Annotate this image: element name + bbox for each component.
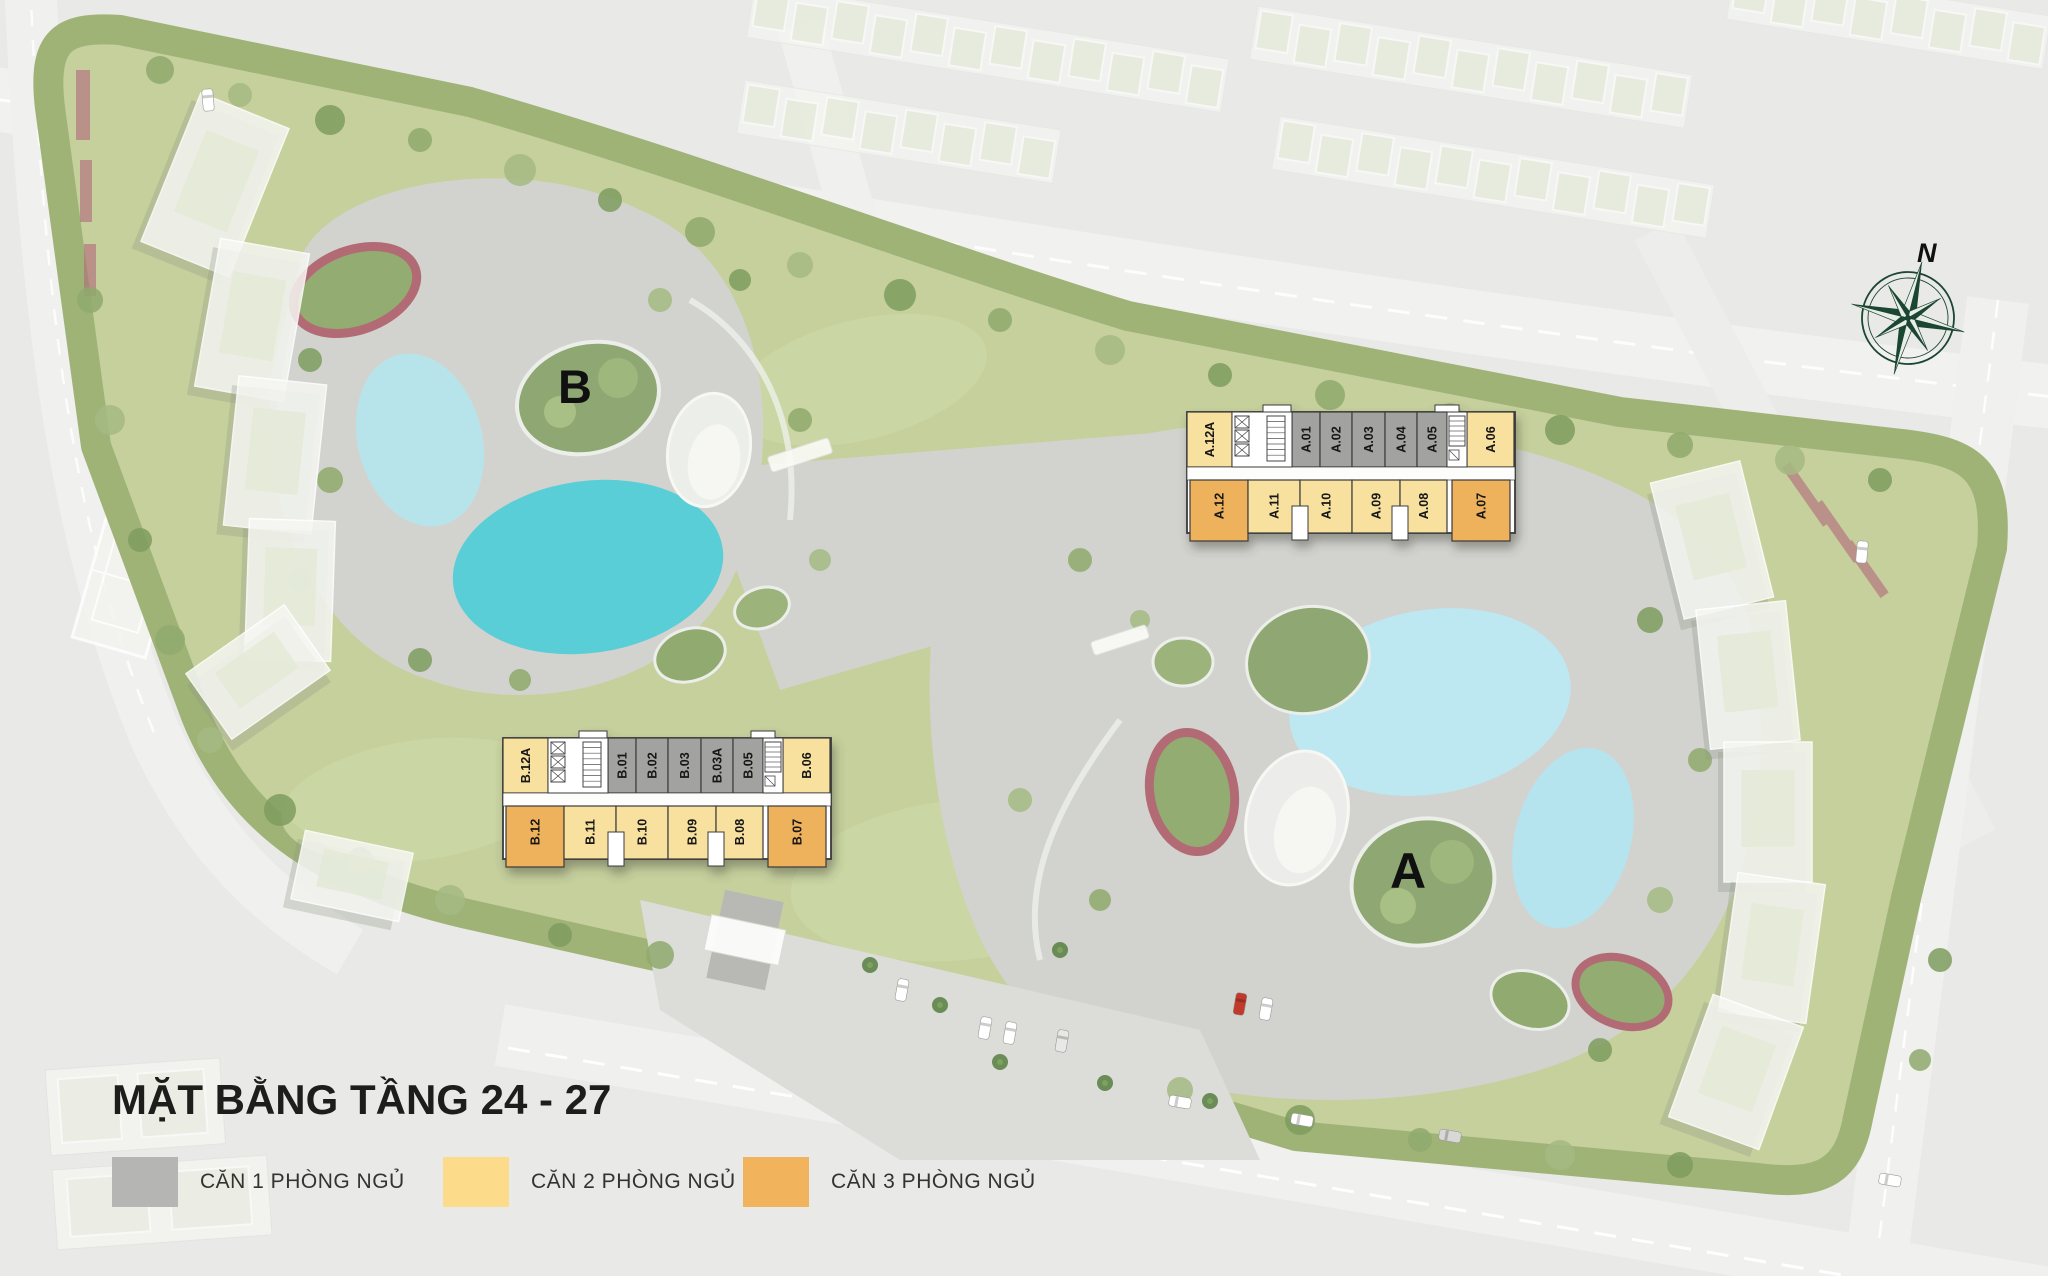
unit-label: A.10 [1319,493,1333,519]
unit-label: B.03 [678,752,692,778]
unit-label: A.11 [1267,493,1281,519]
legend-swatch-2br [443,1157,509,1207]
unit-label: B.05 [741,752,755,778]
unit-label: B.03A [710,748,724,783]
unit-label: B.06 [800,752,814,778]
entry-notch [708,832,724,866]
car-icon [1856,541,1869,564]
zone-label-a: A [1390,843,1426,899]
legend-item-3br: CĂN 3 PHÒNG NGỦ [743,1157,1036,1207]
unit-label: B.09 [685,819,699,845]
legend-label-2br: CĂN 2 PHÒNG NGỦ [531,1170,736,1194]
unit-label: B.01 [615,752,629,778]
compass-n-label: N [1917,238,1937,268]
legend-item-1br: CĂN 1 PHÒNG NGỦ [112,1157,405,1207]
legend-swatch-3br [743,1157,809,1207]
corridor [1187,467,1515,480]
stair-core [763,738,783,793]
zone-label-b: B [558,360,592,413]
entry-notch [608,832,624,866]
unit-label: B.07 [790,819,804,845]
entry-notch [1292,506,1308,540]
unit-label: A.09 [1369,493,1383,519]
entry-notch [1392,506,1408,540]
page-title: MẶT BẰNG TẦNG 24 - 27 [112,1076,611,1124]
elevator-core [548,738,608,793]
unit-label: A.08 [1417,493,1431,519]
masterplan-canvas: N B A B.12AB.01B.02B.03B.03AB.05B.06B.12… [0,0,2048,1276]
unit-label: B.12 [528,819,542,845]
unit-label: A.12 [1212,493,1226,519]
unit-label: B.02 [645,752,659,778]
elevator-core [1232,412,1292,467]
stair-core [1447,412,1467,467]
unit-label: A.01 [1299,426,1313,452]
legend-item-2br: CĂN 2 PHÒNG NGỦ [443,1157,736,1207]
unit-label: B.08 [733,819,747,845]
car-icon [202,89,215,112]
floorplate-block-b: B.12AB.01B.02B.03B.03AB.05B.06B.12B.11B.… [503,731,831,867]
unit-label: A.12A [1203,422,1217,457]
unit-label: A.04 [1394,426,1408,452]
legend-swatch-1br [112,1157,178,1207]
wing-segment [1718,742,1812,892]
unit-label: B.12A [519,748,533,783]
unit-label: A.05 [1425,426,1439,452]
unit-label: A.03 [1362,426,1376,452]
legend-label-1br: CĂN 1 PHÒNG NGỦ [200,1170,405,1194]
legend-label-3br: CĂN 3 PHÒNG NGỦ [831,1170,1036,1194]
corridor [503,793,831,806]
floorplate-block-a: A.12AA.01A.02A.03A.04A.05A.06A.12A.11A.1… [1187,405,1515,541]
unit-label: B.10 [635,819,649,845]
unit-label: A.06 [1484,426,1498,452]
unit-label: A.02 [1329,426,1343,452]
unit-label: A.07 [1474,493,1488,519]
wing-segment [1690,601,1801,760]
unit-label: B.11 [583,819,597,845]
